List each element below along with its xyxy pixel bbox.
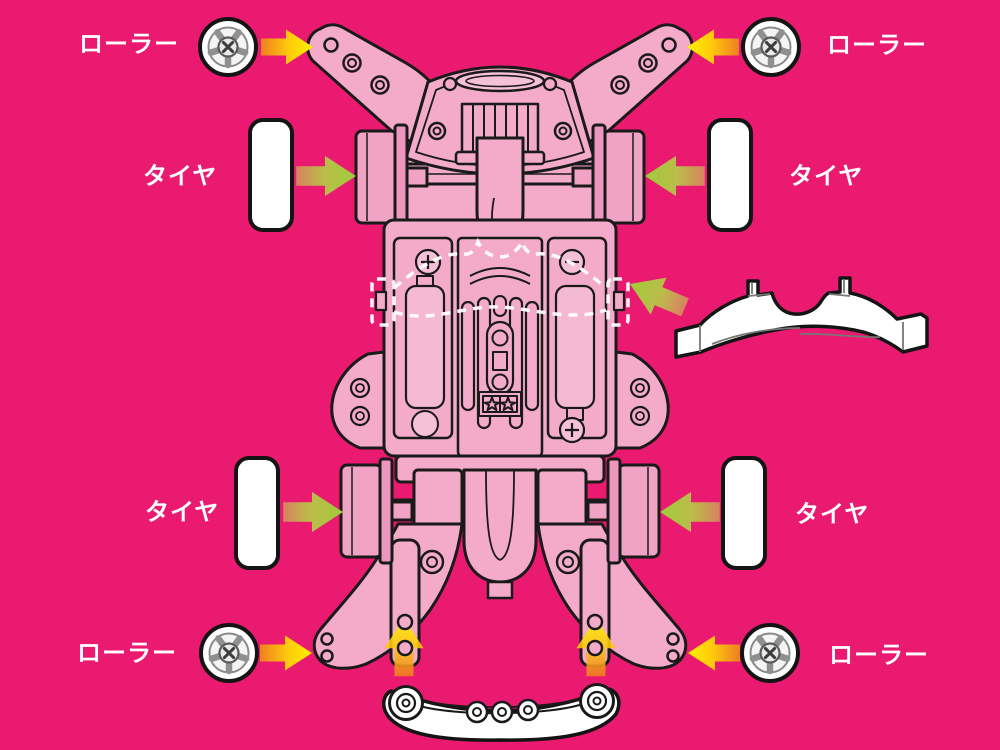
gear-cover-part [676,278,927,357]
tire-icon-front-right [709,120,751,230]
roller-icon-rear-left [201,625,257,681]
arrow-roller-rear-right [688,636,740,671]
arrow-tire-front-left [296,156,356,196]
arrow-roller-front-right [687,30,739,65]
diagram-illustration [0,0,1000,750]
tire-icon-rear-right [723,458,765,568]
assembly-diagram: ローラー ローラー タイヤ タイヤ タイヤ タイヤ ローラー ローラー [0,0,1000,750]
side-wing-left [332,352,384,448]
label-roller-rear-left: ローラー [77,641,177,665]
roller-icon-front-right [743,19,799,75]
rear-gear-housing [464,470,536,598]
label-roller-rear-right: ローラー [829,643,929,667]
rear-mount-right [538,470,586,528]
arrow-tire-rear-right [660,492,720,532]
label-tire-rear-left: タイヤ [145,500,219,524]
arrow-roller-front-left [261,30,313,65]
label-tire-front-right: タイヤ [789,164,863,188]
label-tire-rear-right: タイヤ [795,502,869,526]
arrow-tire-rear-left [283,492,343,532]
label-roller-front-right: ローラー [827,33,927,57]
center-console [458,238,542,456]
right-clip-tab [614,292,624,310]
arrow-gear-cover [622,265,693,325]
chassis-illustration [308,25,693,668]
arrow-tire-front-right [645,156,705,196]
label-roller-front-left: ローラー [79,32,179,56]
brand-star-logo [479,392,521,416]
left-clip-tab [376,292,386,310]
rear-mount-left [414,470,462,528]
rear-stay-part [384,685,619,741]
roller-icon-rear-right [742,625,798,681]
tire-icon-rear-left [236,458,278,568]
battery-bay-right [548,238,606,442]
arrow-roller-rear-left [260,636,312,671]
roller-icon-front-left [200,19,256,75]
label-tire-front-left: タイヤ [143,164,217,188]
side-wing-right [616,352,668,448]
tire-icon-front-left [250,120,292,230]
